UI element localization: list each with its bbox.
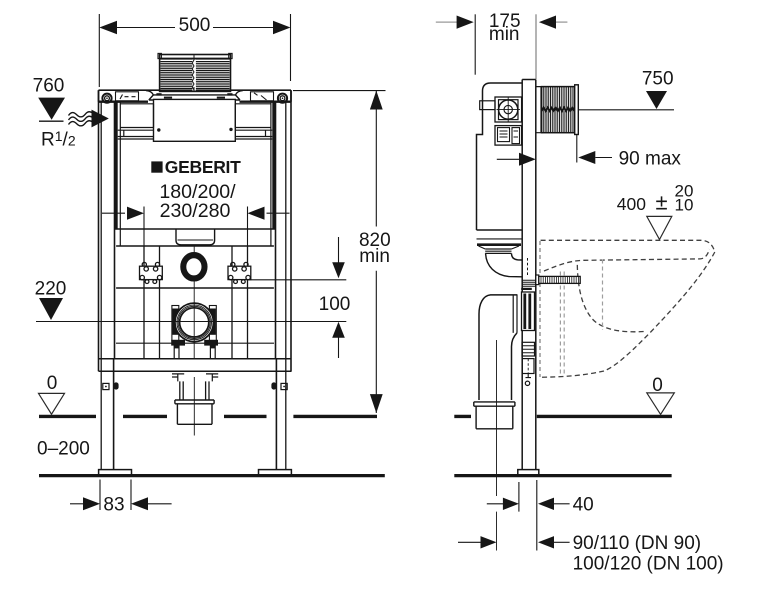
svg-text:750: 750 xyxy=(642,68,674,89)
svg-text:90/110 (DN 90): 90/110 (DN 90) xyxy=(573,533,702,554)
svg-text:min: min xyxy=(489,24,520,45)
svg-text:0: 0 xyxy=(47,373,58,394)
svg-text:10: 10 xyxy=(675,196,694,215)
svg-text:760: 760 xyxy=(33,76,65,97)
svg-text:90 max: 90 max xyxy=(619,149,682,170)
svg-text:±: ± xyxy=(656,190,668,215)
svg-text:min: min xyxy=(359,246,390,267)
svg-text:500: 500 xyxy=(179,15,211,36)
svg-text:230/280: 230/280 xyxy=(160,200,231,222)
svg-text:0–200: 0–200 xyxy=(37,439,90,460)
svg-text:100/120 (DN 100): 100/120 (DN 100) xyxy=(573,554,724,575)
svg-text:400: 400 xyxy=(617,194,646,214)
svg-text:100: 100 xyxy=(319,294,351,315)
svg-text:83: 83 xyxy=(103,495,124,516)
svg-text:220: 220 xyxy=(35,279,67,300)
svg-text:GEBERIT: GEBERIT xyxy=(165,157,241,177)
svg-text:40: 40 xyxy=(573,495,594,516)
